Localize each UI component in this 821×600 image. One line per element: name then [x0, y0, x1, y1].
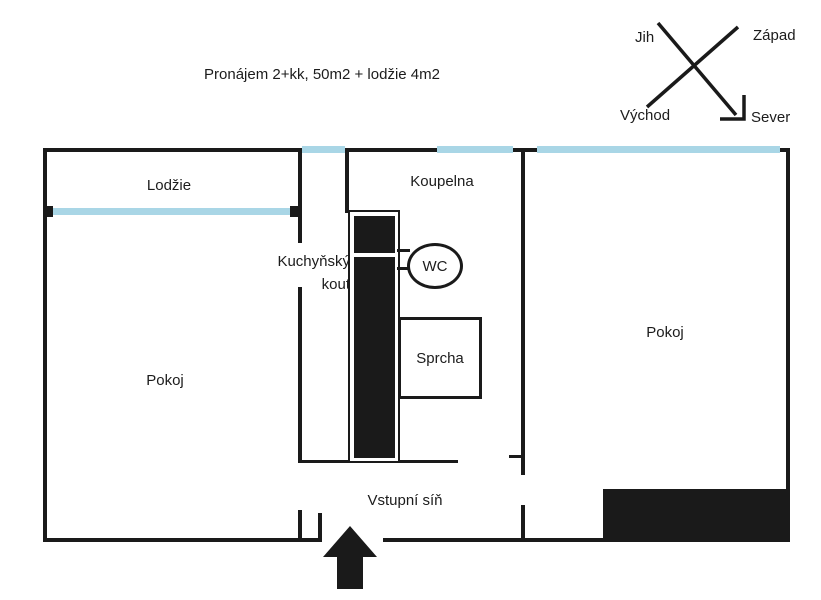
room-label-room-right: Pokoj — [615, 324, 715, 343]
kitchen-counter-block-bottom — [354, 257, 395, 458]
kitchen-counter-block-top — [354, 216, 395, 253]
wall-top-junction — [513, 148, 537, 152]
window-loggia-end-right — [290, 206, 299, 217]
wall-leftroom-doortick — [298, 510, 302, 542]
window-top-kitchen — [302, 146, 345, 153]
shower-fixture: Sprcha — [398, 317, 482, 399]
floor-plan: Pronájem 2+kk, 50m2 + lodžie 4m2 Jih Záp… — [0, 0, 821, 600]
entrance-arrow-icon — [318, 520, 382, 592]
compass-label-west: Západ — [753, 27, 796, 46]
shower-label: Sprcha — [416, 350, 464, 367]
compass: Jih Západ Východ Sever — [595, 8, 821, 138]
wall-bottom-right — [383, 538, 790, 542]
wall-leftroom-lower — [298, 287, 302, 462]
window-top-rightroom — [537, 146, 780, 153]
compass-label-north: Sever — [751, 109, 790, 128]
room-label-entrance-hall: Vstupní síň — [345, 492, 465, 511]
window-loggia — [50, 208, 292, 215]
wall-top-bathroom — [345, 148, 437, 152]
wardrobe-block — [603, 489, 786, 538]
room-label-kitchenette: Kuchyňský kout — [258, 250, 350, 297]
window-top-bathroom — [437, 146, 513, 153]
wall-bathroom-left — [345, 148, 349, 212]
wc-fixture: WC — [407, 243, 463, 289]
wall-bathroom-right — [521, 148, 525, 475]
compass-label-south: Jih — [635, 29, 654, 48]
window-loggia-end-left — [44, 206, 53, 217]
wall-right-outer — [786, 148, 790, 542]
wc-connector-top — [397, 249, 410, 252]
compass-label-east: Východ — [620, 107, 670, 126]
room-label-bathroom: Koupelna — [392, 173, 492, 192]
room-label-loggia: Lodžie — [119, 177, 219, 196]
wall-top-right-corner — [780, 148, 790, 152]
room-label-room-left: Pokoj — [115, 372, 215, 391]
wc-label: WC — [423, 258, 448, 275]
plan-title: Pronájem 2+kk, 50m2 + lodžie 4m2 — [162, 66, 482, 85]
wall-bathroom-right-stub — [509, 455, 523, 458]
wall-rightroom-doortick — [521, 505, 525, 542]
wall-bottom-left — [43, 538, 322, 542]
wall-leftroom-upper — [298, 148, 302, 243]
wall-top-loggia — [43, 148, 302, 152]
